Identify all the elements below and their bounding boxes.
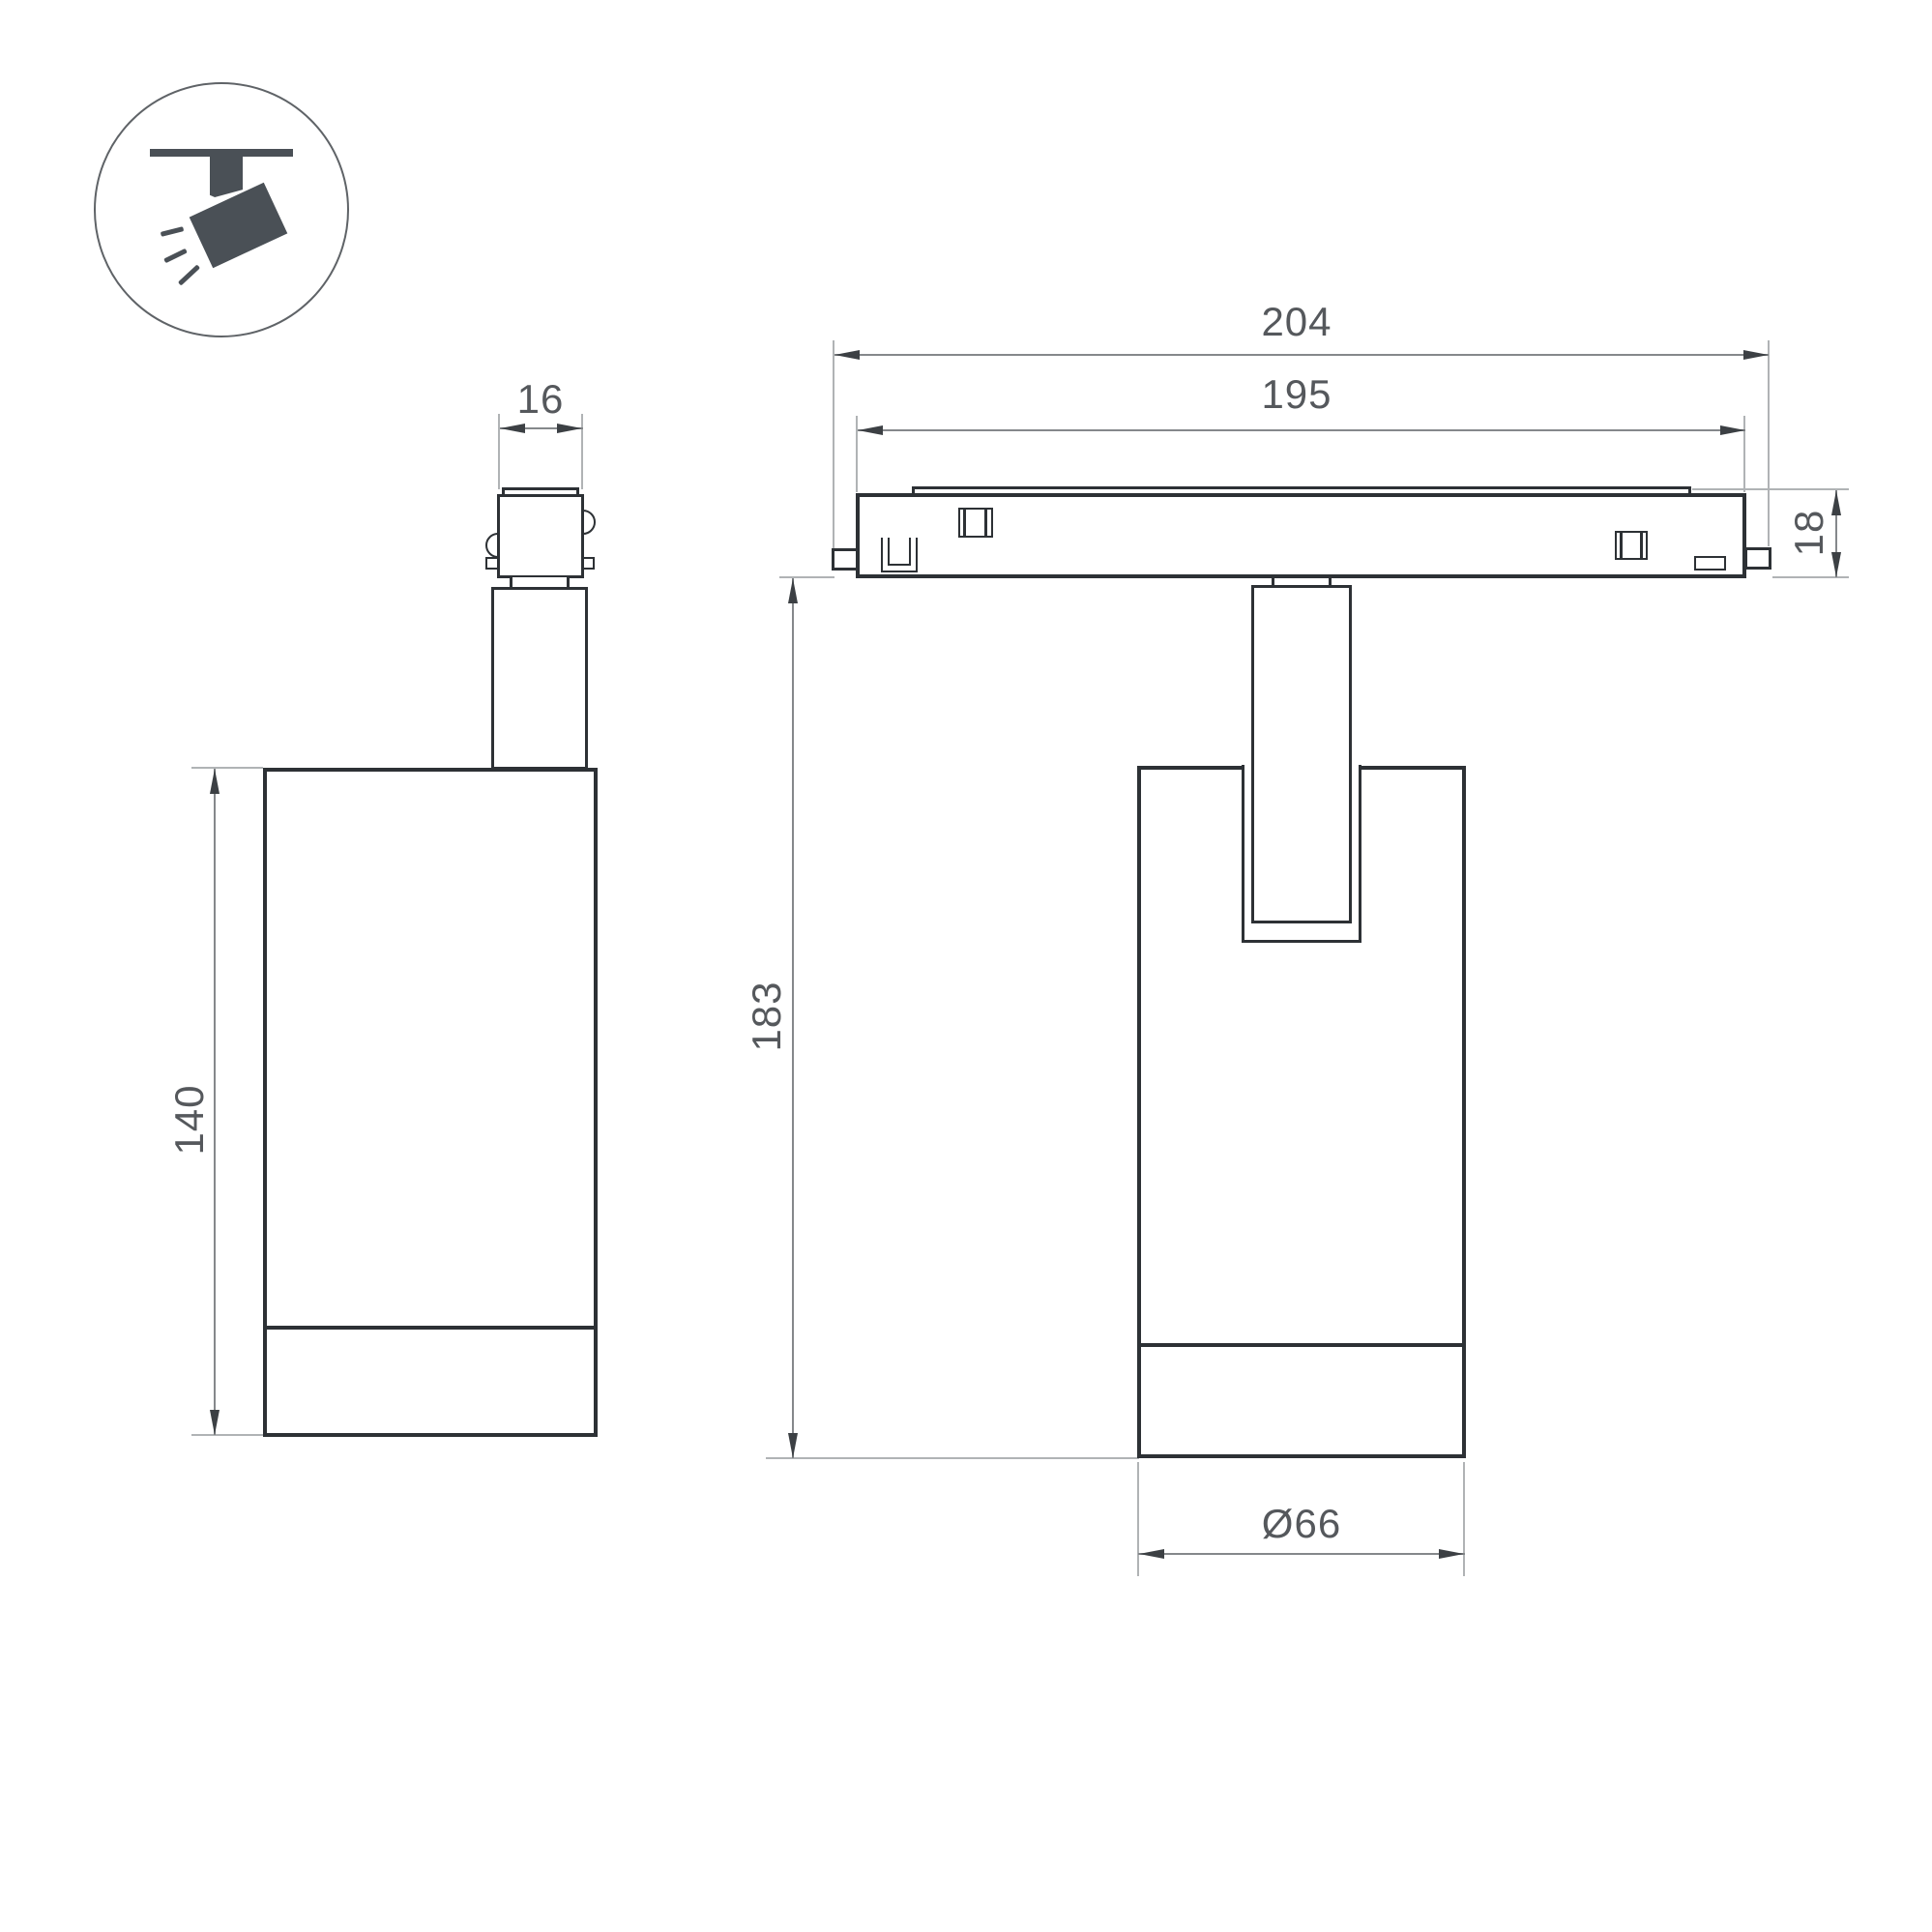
front-view-body-seam: [1140, 1343, 1463, 1347]
ext-line-body-height-top: [191, 767, 263, 769]
dim-line-track-visible: [858, 429, 1745, 431]
dim-arrow-right-icon: [557, 424, 582, 433]
dim-label-overall-height: 183: [746, 958, 788, 1074]
dim-label-body-diameter: Ø66: [1224, 1503, 1379, 1545]
icon-track-stem-icon: [210, 155, 243, 197]
front-view-contact-line: [1640, 533, 1643, 558]
ext-line-track-total-right: [1768, 340, 1770, 546]
ext-line-overall-height-bottom: [766, 1457, 1139, 1459]
dim-label-track-visible: 195: [1219, 373, 1374, 416]
dim-line-track-total: [834, 354, 1769, 356]
side-view-adapter: [497, 494, 584, 578]
dim-line-body-height: [214, 769, 216, 1435]
ext-line-body-diameter-right: [1463, 1462, 1465, 1576]
dim-arrow-left-icon: [834, 350, 860, 360]
dim-arrow-down-icon: [1831, 552, 1841, 577]
dim-line-body-diameter: [1138, 1553, 1465, 1555]
dim-label-body-height: 140: [168, 1062, 211, 1178]
ext-line-body-height-bottom: [191, 1434, 263, 1436]
dim-arrow-up-icon: [1831, 490, 1841, 515]
dim-arrow-left-icon: [1139, 1549, 1164, 1559]
front-view-contact-line: [963, 510, 966, 536]
ext-line-body-diameter-left: [1137, 1462, 1139, 1576]
dim-arrow-right-icon: [1743, 350, 1769, 360]
dim-arrow-up-icon: [788, 578, 798, 603]
dim-arrow-down-icon: [210, 1410, 220, 1435]
dim-arrow-right-icon: [1720, 425, 1745, 435]
dim-arrow-left-icon: [500, 424, 525, 433]
dim-label-adapter-width: 16: [502, 378, 579, 421]
side-view-body-seam: [266, 1326, 595, 1330]
front-view-clip-bracket-inner: [888, 538, 911, 566]
side-view-body: [263, 768, 598, 1437]
side-view-stem: [491, 587, 588, 770]
front-view-stem: [1251, 585, 1352, 923]
front-view-slot-right: [1694, 556, 1726, 571]
front-view-contact-line: [1620, 533, 1623, 558]
dim-line-overall-height: [792, 578, 794, 1458]
front-view-track-endcap-right: [1744, 547, 1771, 570]
dimension-drawing-canvas: 16 140 204 195 18 183: [0, 0, 1932, 1932]
dim-label-track-height: 18: [1788, 484, 1830, 581]
front-view-contact-line: [984, 510, 987, 536]
dim-label-track-total: 204: [1219, 301, 1374, 343]
dim-arrow-down-icon: [788, 1433, 798, 1458]
dim-arrow-up-icon: [210, 769, 220, 794]
ext-line-track-total-left: [833, 340, 834, 548]
dim-arrow-left-icon: [858, 425, 883, 435]
dim-arrow-right-icon: [1439, 1549, 1464, 1559]
